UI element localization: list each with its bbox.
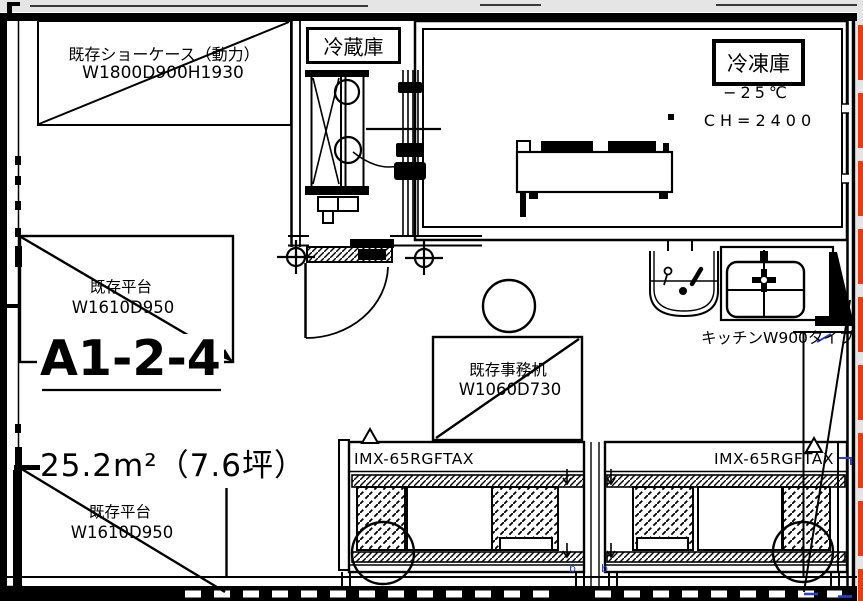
door-swing [306, 239, 395, 338]
platform-upper-label: 既存平台 [90, 279, 152, 297]
freezer-ceiling-height-label: CH=2400 [704, 112, 816, 130]
freezer-label-box: 冷凍庫 [712, 39, 805, 86]
refrigerator-label: 冷蔵庫 [324, 31, 384, 60]
freezer-label: 冷凍庫 [727, 48, 790, 78]
freezer-temperature-label: −25℃ [723, 84, 791, 102]
hand-sink-symbol [650, 251, 718, 316]
counter-right-model-label: IMX-65RGFTAX [714, 451, 834, 469]
post-mark-right: b [601, 563, 608, 576]
floor-plan: 既存ショーケース（動力） W1800D900H1930 冷蔵庫 冷凍庫 −25℃… [0, 0, 863, 601]
room-id-label: A1-2-4 [37, 334, 224, 384]
desk-label: 既存事務机 [469, 362, 547, 380]
counter-left-model-label: IMX-65RGFTAX [354, 451, 474, 469]
desk-size-label: W1060D730 [459, 381, 562, 400]
platform-upper-size-label: W1610D950 [72, 299, 175, 318]
freezer-unit-symbol [517, 141, 672, 217]
office-chair [483, 280, 535, 332]
pipe-chase [366, 70, 441, 236]
platform-lower-label: 既存平台 [89, 504, 151, 522]
showcase-size-label: W1800D900H1930 [82, 64, 244, 84]
kitchen-label: キッチンW900タイプ [701, 330, 854, 348]
refrigerator-label-box: 冷蔵庫 [306, 27, 401, 64]
area-label: 25.2m²（7.6坪） [40, 449, 306, 485]
post-mark-left: b [569, 563, 576, 576]
kitchen-sink-symbol [721, 247, 833, 320]
platform-lower-size-label: W1610D950 [71, 524, 174, 543]
counter-gap-posts [591, 442, 599, 586]
refrigerator-symbol [305, 70, 398, 223]
showcase-label: 既存ショーケース（動力） [68, 46, 259, 64]
door-jamb-crosshair-left [277, 240, 315, 274]
